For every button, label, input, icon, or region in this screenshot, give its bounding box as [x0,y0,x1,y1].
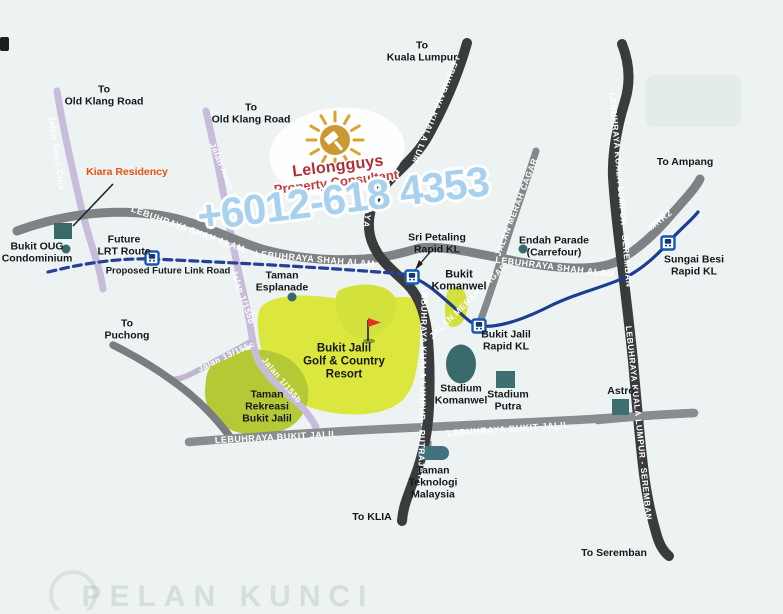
stadium-putra-shape [496,371,515,388]
dest-puchong: To Puchong [105,318,150,342]
label-bukit-jalil-rapid-kl: Bukit Jalil Rapid KL [481,329,531,353]
location-map: PELAN KUNCI Jalan Awan Cina Jalan Awan B… [0,0,783,610]
sungai-besi-station-icon [662,237,675,250]
sri-petaling-station-icon [406,271,419,284]
label-bukit-oug-condominium: Bukit OUG Condominium [2,241,73,265]
label-endah-parade: Endah Parade (Carrefour) [519,235,589,259]
dest-seremban: To Seremban [581,548,647,560]
dest-ampang: To Ampang [657,157,714,169]
label-taman-rekreasi: Taman Rekreasi Bukit Jalil [242,389,292,424]
stadium-komanwel-shape [446,345,476,384]
dest-old-klang-road-west: To Old Klang Road [65,84,144,108]
dest-kuala-lumpur: To Kuala Lumpur [387,40,458,64]
label-stadium-putra: Stadium Putra [487,389,528,413]
label-taman-teknologi: Taman Teknologi Malaysia [409,465,458,500]
label-bukit-komanwel: Bukit Komanwel [431,269,486,294]
bleed-smudge [645,75,741,127]
label-stadium-komanwel: Stadium Komanwel [435,383,488,407]
label-bukit-jalil-golf-resort: Bukit Jalil Golf & Country Resort [303,343,385,382]
label-astro: Astro [607,386,634,398]
label-kiara-residency: Kiara Residency [86,167,168,179]
bleed-title: PELAN KUNCI [81,580,374,614]
label-future-lrt-route: Future LRT Route [97,234,150,258]
label-taman-esplanade: Taman Esplanade [256,270,309,294]
dest-klia: To KLIA [352,512,391,524]
label-sri-petaling-rapid-kl: Sri Petaling Rapid KL [408,232,466,256]
astro-shape [612,399,629,415]
label-proposed-future-link-road: Proposed Future Link Road [106,267,231,278]
esplanade-dot [288,293,297,302]
label-sungai-besi-rapid-kl: Sungai Besi Rapid KL [664,254,724,278]
kiara-residency-marker [54,223,72,239]
scan-artifact [0,37,9,51]
